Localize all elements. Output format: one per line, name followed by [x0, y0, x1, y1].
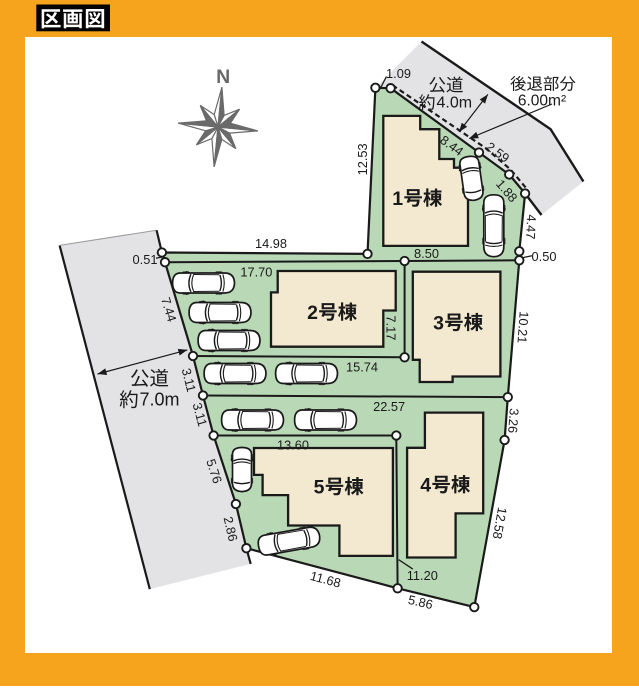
- svg-text:N: N: [216, 66, 230, 88]
- svg-text:7.0m: 7.0m: [140, 390, 180, 410]
- svg-text:4: 4: [420, 475, 431, 497]
- svg-text:1: 1: [392, 188, 403, 210]
- svg-text:1.09: 1.09: [386, 66, 411, 81]
- svg-text:8.50: 8.50: [414, 246, 439, 261]
- svg-text:15.74: 15.74: [346, 360, 378, 375]
- svg-text:2: 2: [307, 302, 318, 324]
- svg-text:13.60: 13.60: [277, 438, 309, 453]
- svg-text:3: 3: [433, 312, 444, 334]
- svg-text:11.20: 11.20: [407, 568, 438, 583]
- svg-text:6.00m²: 6.00m²: [518, 93, 566, 110]
- svg-text:17.70: 17.70: [240, 265, 272, 280]
- svg-text:0.50: 0.50: [532, 249, 557, 264]
- svg-text:0.51: 0.51: [133, 252, 158, 267]
- svg-text:12.53: 12.53: [355, 143, 370, 175]
- svg-text:10.21: 10.21: [515, 311, 532, 344]
- svg-text:22.57: 22.57: [373, 399, 405, 414]
- svg-text:5: 5: [314, 477, 325, 499]
- svg-text:3.26: 3.26: [505, 408, 522, 434]
- svg-text:4.47: 4.47: [523, 214, 539, 240]
- svg-text:4.0m: 4.0m: [437, 95, 473, 112]
- svg-text:7.17: 7.17: [384, 315, 399, 340]
- svg-text:14.98: 14.98: [255, 236, 287, 251]
